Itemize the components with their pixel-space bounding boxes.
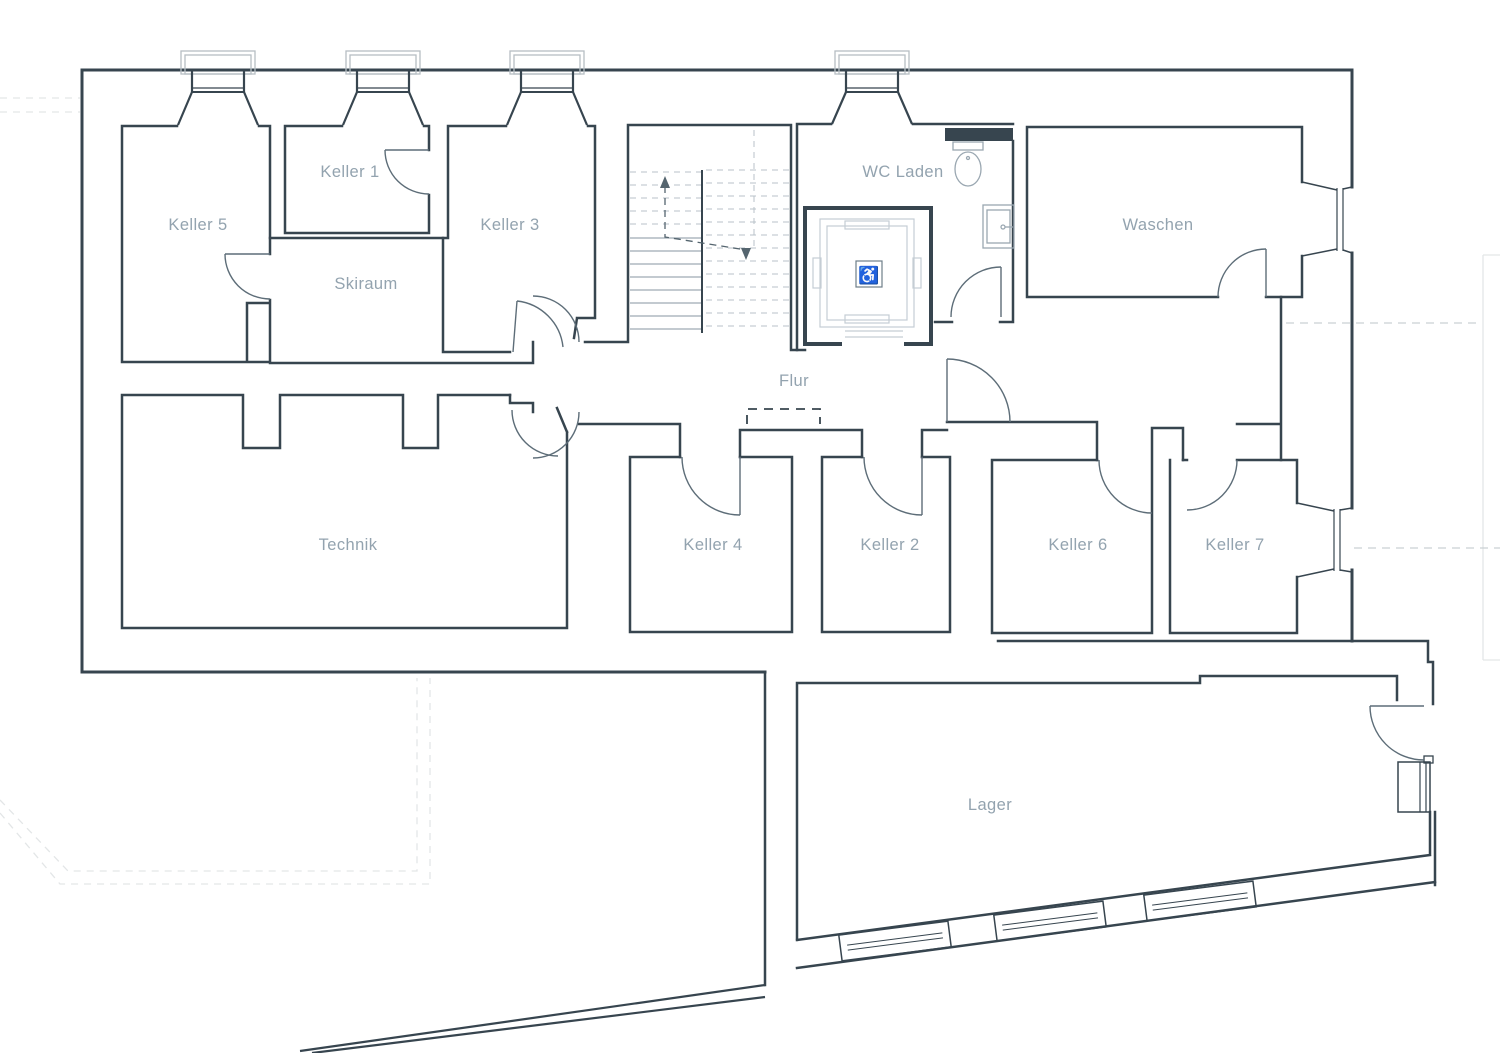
flur-dashed-opening bbox=[747, 409, 820, 424]
room-labels: Keller 5 Keller 1 Keller 3 Skiraum WC La… bbox=[168, 163, 1264, 814]
room-label-keller-5: Keller 5 bbox=[168, 216, 227, 234]
room-label-keller-1: Keller 1 bbox=[320, 163, 379, 181]
waschen-window-icon bbox=[1302, 182, 1352, 256]
door-keller-7 bbox=[1187, 460, 1237, 510]
stair-treads-dashed bbox=[630, 130, 789, 326]
sink-icon bbox=[983, 205, 1014, 248]
stair-walk-line bbox=[660, 176, 751, 260]
room-label-skiraum: Skiraum bbox=[334, 275, 397, 293]
stair-arrow-up-icon bbox=[660, 176, 670, 188]
door-lager bbox=[1370, 706, 1424, 760]
door-keller-3 bbox=[513, 301, 563, 352]
room-skiraum-walls bbox=[270, 238, 533, 412]
room-lager-walls bbox=[797, 676, 1430, 940]
room-label-keller-6: Keller 6 bbox=[1048, 536, 1107, 554]
room-label-lager: Lager bbox=[968, 796, 1012, 814]
wheelchair-icon: ♿ bbox=[858, 265, 879, 285]
room-label-keller-7: Keller 7 bbox=[1205, 536, 1264, 554]
interior-walls bbox=[122, 124, 1430, 940]
keller-7-window-icon bbox=[1297, 503, 1352, 577]
floor-plan-page: ♿ Keller 5 Keller 1 Keller 3 Skiraum WC … bbox=[0, 0, 1500, 1053]
exterior-path-edge bbox=[300, 985, 765, 1053]
room-waschen-walls bbox=[1027, 127, 1302, 297]
axis-dashed-lines bbox=[1286, 323, 1500, 548]
door-keller-4 bbox=[682, 457, 740, 515]
corridor-south-walls bbox=[579, 422, 1097, 460]
room-label-waschen: Waschen bbox=[1123, 216, 1194, 234]
wc-niche-bar bbox=[945, 128, 1013, 141]
room-keller-5-walls bbox=[122, 126, 270, 362]
door-skiraum-double bbox=[533, 296, 579, 458]
door-flur-corridor bbox=[947, 359, 1010, 422]
room-wc-walls bbox=[797, 124, 1013, 350]
stair-arrow-down-icon bbox=[741, 248, 751, 260]
door-keller-2 bbox=[864, 457, 922, 515]
stairs bbox=[630, 130, 789, 333]
exterior-walls-lower bbox=[765, 641, 1435, 985]
lightwell-icon-2 bbox=[343, 51, 423, 125]
room-label-keller-4: Keller 4 bbox=[683, 536, 742, 554]
floor-plan-canvas: ♿ Keller 5 Keller 1 Keller 3 Skiraum WC … bbox=[0, 0, 1500, 1053]
room-label-technik: Technik bbox=[319, 536, 378, 554]
toilet-icon bbox=[953, 142, 983, 186]
lager-window-right-icon bbox=[1398, 756, 1433, 812]
room-label-flur: Flur bbox=[779, 372, 809, 390]
room-label-wc-laden: WC Laden bbox=[862, 163, 943, 181]
lightwell-icon-3 bbox=[507, 51, 587, 125]
door-waschen bbox=[1218, 249, 1266, 297]
window-niches bbox=[1297, 182, 1433, 812]
corridor-east-walls bbox=[1237, 297, 1281, 460]
lightwell-icon-4 bbox=[832, 51, 912, 124]
wc-fixtures bbox=[945, 128, 1014, 248]
lightwell-icons bbox=[178, 51, 912, 125]
door-keller-1 bbox=[385, 150, 429, 194]
elevator: ♿ bbox=[805, 208, 931, 346]
room-label-keller-2: Keller 2 bbox=[860, 536, 919, 554]
room-label-keller-3: Keller 3 bbox=[480, 216, 539, 234]
lightwell-icon-1 bbox=[178, 51, 258, 125]
door-keller-6 bbox=[1099, 460, 1152, 513]
lager-windows bbox=[839, 881, 1256, 961]
room-technik-walls bbox=[122, 395, 567, 628]
stair-treads-solid bbox=[630, 238, 701, 329]
door-swings bbox=[225, 150, 1424, 760]
door-wc bbox=[951, 267, 1001, 317]
room-keller-6-walls bbox=[992, 428, 1183, 633]
door-keller-5 bbox=[225, 254, 270, 299]
door-technik bbox=[512, 410, 558, 456]
exterior-walls bbox=[82, 70, 1352, 672]
